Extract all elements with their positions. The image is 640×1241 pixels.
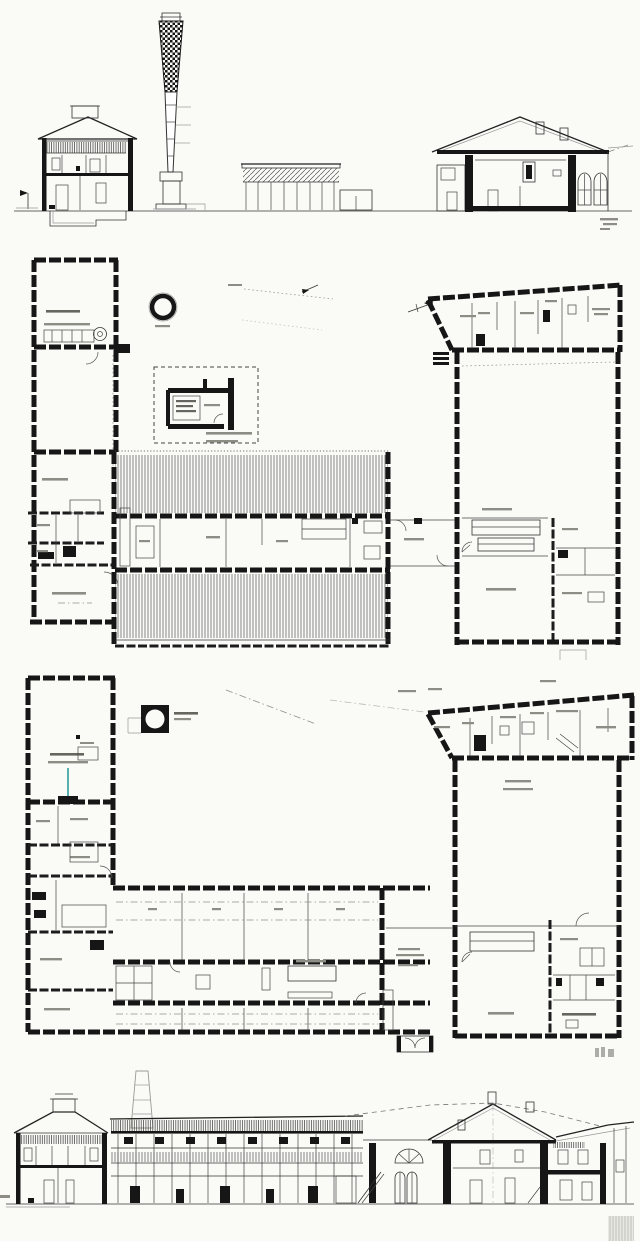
right-building-section <box>432 117 633 230</box>
top-section-drawing <box>0 0 640 245</box>
long-table <box>462 932 534 962</box>
central-hall-plan <box>28 888 452 1032</box>
clerestory-windows <box>124 1137 350 1144</box>
panel-lower-plan <box>0 660 640 1070</box>
chimney-behind <box>131 1071 153 1128</box>
main-stair <box>116 966 152 1000</box>
entrance-vestibule-annex <box>397 1036 433 1052</box>
arched-window <box>578 173 591 205</box>
handwritten-note <box>595 1047 614 1057</box>
arched-doors <box>395 1172 417 1203</box>
east-wing-plan <box>457 352 618 660</box>
lower-room-band <box>116 1008 378 1030</box>
drawing-sheet <box>0 0 640 1241</box>
north-wing-plan <box>428 695 634 760</box>
panel-top-section <box>0 0 640 245</box>
scan-smudge <box>600 218 618 230</box>
upper-room-band <box>116 893 378 960</box>
panel-upper-plan <box>0 245 640 660</box>
chimney-elevation <box>153 13 205 211</box>
lunette-window <box>395 1149 423 1163</box>
detail-inset-plan <box>154 367 258 443</box>
chimney-plan-block <box>128 705 198 733</box>
central-hall-plan <box>114 440 455 646</box>
shed-hall-section <box>110 1116 363 1203</box>
hall-stair <box>302 519 346 539</box>
corridor-band <box>116 960 366 1003</box>
chimney-plan-ring <box>149 293 177 327</box>
lower-doors <box>130 1176 356 1203</box>
left-building-section <box>16 106 137 226</box>
upper-plan-drawing <box>0 245 640 660</box>
exterior-stair <box>433 352 449 365</box>
bottom-section-drawing <box>0 1070 640 1241</box>
dryer-equipment <box>44 328 107 343</box>
colonnade-shed-elevation <box>241 164 372 210</box>
long-tables <box>462 520 540 552</box>
panel-bottom-section <box>0 1070 640 1241</box>
right-building-section <box>548 1122 634 1204</box>
entrance-bay-section <box>358 1140 432 1203</box>
left-building-section <box>14 1094 108 1204</box>
hall-east-link <box>390 518 455 566</box>
datum-flag-marker <box>16 190 38 209</box>
survey-marks <box>228 284 433 330</box>
east-wing-plan <box>455 760 619 1057</box>
left-wing-plan <box>28 678 115 1032</box>
autoclave-equipment <box>288 960 336 998</box>
lower-plan-drawing <box>0 660 640 1070</box>
arched-window <box>594 173 607 205</box>
hall-east-link <box>383 928 452 1030</box>
